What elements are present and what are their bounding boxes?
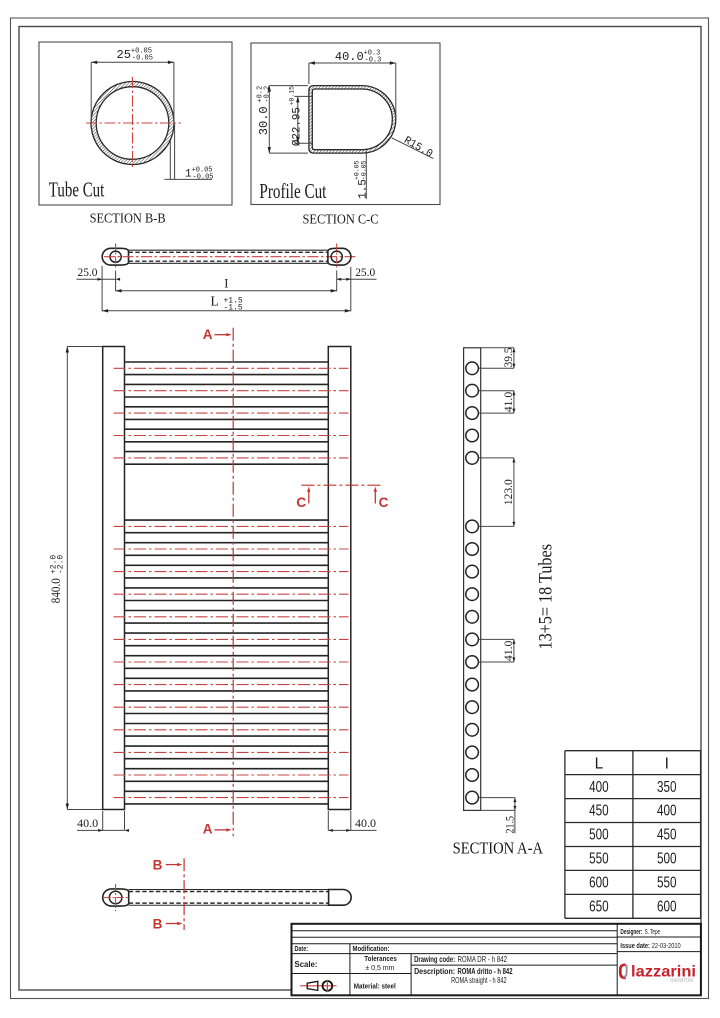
svg-text:400: 400 xyxy=(657,803,677,820)
svg-text:Material: steel: Material: steel xyxy=(354,981,396,990)
svg-text:550: 550 xyxy=(657,875,677,892)
svg-text:840.0: 840.0 xyxy=(48,578,63,603)
svg-text:+0.05: +0.05 xyxy=(353,160,360,180)
svg-text:C: C xyxy=(296,495,306,510)
svg-text:Description:: Description: xyxy=(414,967,455,976)
svg-text:I: I xyxy=(665,756,669,773)
svg-text:Profile Cut: Profile Cut xyxy=(259,179,326,203)
svg-text:25.0: 25.0 xyxy=(355,267,375,279)
svg-text:A: A xyxy=(203,327,213,342)
svg-text:Date:: Date: xyxy=(295,944,309,953)
svg-text:SECTION A-A: SECTION A-A xyxy=(453,839,544,858)
svg-text:30.0: 30.0 xyxy=(257,106,271,135)
svg-text:40.0: 40.0 xyxy=(355,818,376,830)
svg-text:1.5: 1.5 xyxy=(357,179,369,199)
svg-text:13+5= 18 Tubes: 13+5= 18 Tubes xyxy=(535,544,556,650)
svg-text:550: 550 xyxy=(589,851,609,868)
svg-text:B: B xyxy=(153,858,163,873)
svg-text:450: 450 xyxy=(657,827,677,844)
svg-text:25.0: 25.0 xyxy=(78,267,98,279)
svg-text:650: 650 xyxy=(589,899,609,916)
svg-text:21.5: 21.5 xyxy=(502,816,516,834)
svg-text:SECTION C-C: SECTION C-C xyxy=(303,212,379,227)
svg-text:-1.5: -1.5 xyxy=(224,303,243,312)
svg-text:SECTION B-B: SECTION B-B xyxy=(90,212,166,227)
svg-text:123.0: 123.0 xyxy=(501,479,515,505)
svg-text:350: 350 xyxy=(657,779,677,796)
svg-text:Issue date:: Issue date: xyxy=(620,941,650,950)
svg-text:Drawing code:: Drawing code: xyxy=(414,955,455,964)
svg-text:RADIATORI: RADIATORI xyxy=(670,978,693,984)
svg-text:Modification:: Modification: xyxy=(353,944,390,953)
svg-text:-0.3: -0.3 xyxy=(365,57,382,65)
svg-text:450: 450 xyxy=(589,803,609,820)
svg-text:A: A xyxy=(203,822,213,837)
svg-text:-2.0: -2.0 xyxy=(57,555,66,574)
svg-text:Scale:: Scale: xyxy=(295,960,318,969)
svg-text:Tube Cut: Tube Cut xyxy=(49,177,105,201)
svg-text:± 0,5 mm: ± 0,5 mm xyxy=(365,963,394,972)
svg-text:40.0: 40.0 xyxy=(335,50,364,64)
svg-text:40.0: 40.0 xyxy=(77,818,98,830)
svg-text:41.0: 41.0 xyxy=(501,392,515,413)
svg-text:+0.15: +0.15 xyxy=(288,86,295,106)
svg-text:S. Tepe: S. Tepe xyxy=(645,927,661,936)
svg-text:-0.05: -0.05 xyxy=(360,160,367,180)
svg-text:I: I xyxy=(224,277,228,291)
svg-text:600: 600 xyxy=(589,875,609,892)
svg-text:ROMA dritto - h 842: ROMA dritto - h 842 xyxy=(458,967,513,976)
svg-text:-0.2: -0.2 xyxy=(264,86,272,103)
svg-text:ROMA straight - h 842: ROMA straight - h 842 xyxy=(451,976,507,985)
svg-text:25: 25 xyxy=(117,48,131,62)
svg-text:500: 500 xyxy=(589,827,609,844)
svg-text:-0.05: -0.05 xyxy=(193,173,214,181)
svg-text:Ø22.95: Ø22.95 xyxy=(291,107,303,146)
svg-text:C: C xyxy=(379,495,389,510)
svg-text:L: L xyxy=(595,756,604,773)
svg-text:41.0: 41.0 xyxy=(501,641,515,662)
svg-text:ROMA DR - h 842: ROMA DR - h 842 xyxy=(458,955,508,964)
svg-text:Designer:: Designer: xyxy=(620,927,642,936)
svg-text:L: L xyxy=(211,294,219,309)
svg-text:400: 400 xyxy=(589,779,609,796)
svg-text:Tolerances: Tolerances xyxy=(364,954,397,963)
svg-text:22-03-2010: 22-03-2010 xyxy=(652,941,681,950)
svg-text:39.5: 39.5 xyxy=(501,348,515,368)
svg-text:600: 600 xyxy=(657,899,677,916)
svg-text:B: B xyxy=(153,916,163,931)
svg-text:-0.05: -0.05 xyxy=(132,55,153,63)
svg-text:500: 500 xyxy=(657,851,677,868)
